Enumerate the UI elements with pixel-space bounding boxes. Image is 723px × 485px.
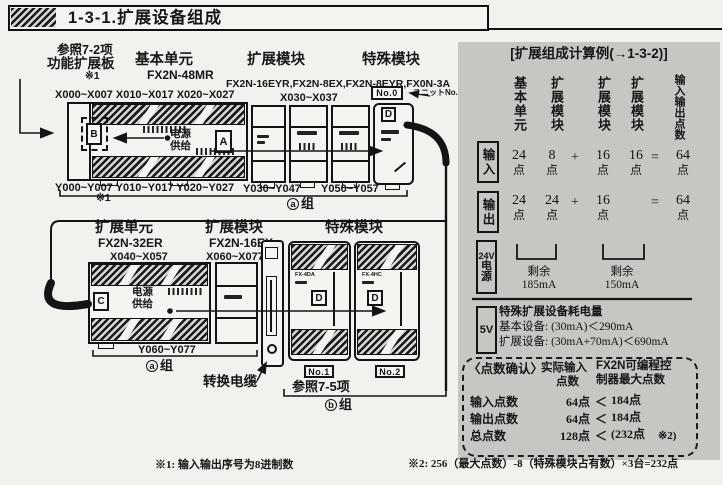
calc-cell: 24点	[503, 193, 535, 222]
calc-cell: 24点	[536, 193, 568, 222]
converter-screw	[267, 344, 277, 354]
board-c-tag: C	[93, 292, 109, 311]
terminal-gap	[130, 156, 160, 178]
converter-top-connector	[265, 247, 278, 259]
circled-a-icon: a	[146, 360, 158, 372]
check-row-max: 184点	[611, 411, 641, 424]
special-module-heading-r1: 特殊模块	[362, 53, 420, 69]
terminal-gap	[153, 264, 183, 286]
y-labels-r1: Y000~Y007 Y010~Y017 Y020~Y027	[55, 182, 234, 194]
terminal-gap	[375, 244, 405, 270]
title-hatch-icon	[11, 8, 56, 27]
input-row-label-box: 输入	[477, 141, 499, 183]
terminal-gap	[307, 329, 337, 355]
power-supply-l2-r2: 供给	[132, 299, 153, 311]
group-a-label-r1: a组	[287, 197, 314, 211]
group-a-label-r2: a组	[146, 359, 173, 373]
module-divider	[290, 160, 326, 162]
check-title: 〈点数确认〉	[468, 363, 543, 377]
check-col-actual-2: 点数	[556, 376, 579, 389]
check-row-name: 输出点数	[470, 413, 518, 426]
equals-sign: =	[651, 195, 659, 211]
exp-module-box-r2	[215, 262, 258, 344]
unit-foot	[98, 344, 114, 349]
terminal-gap	[111, 318, 141, 341]
plus-sign: +	[571, 150, 579, 166]
5v-title: 特殊扩展设备耗电量	[499, 303, 603, 319]
exp-unit-bottom-terminal	[91, 318, 208, 341]
note1-mark-bottom: ※1	[96, 193, 111, 205]
basic-unit-model: FX2N-48MR	[147, 69, 214, 82]
module-nameplate	[297, 131, 317, 135]
less-than-sign: ＜	[595, 396, 607, 409]
terminal-gap	[375, 329, 405, 355]
special1-top-terminal	[291, 244, 348, 270]
calc-cell: 16点	[587, 193, 619, 222]
check-col-max-1: FX2N可编程控	[596, 360, 671, 373]
exp-module-heading-r1: 扩展模块	[247, 53, 305, 69]
ref-note-line2: 功能扩展板	[47, 57, 115, 72]
panel-header: [扩展组成计算例(→1-3-2)]	[458, 47, 720, 62]
module-mark	[257, 135, 269, 138]
module-divider	[290, 126, 326, 128]
col-header-io-total: 输入输出点数	[671, 74, 687, 140]
check-row-max: 184点	[611, 394, 641, 407]
unit-no-label: ユニットNo.	[413, 89, 458, 98]
footnote-2: ※2: 256（最大点数）-8（特殊模块占有数）×3台=232点	[408, 458, 678, 470]
unit-foot	[385, 185, 400, 190]
board-a-tag: A	[215, 130, 232, 153]
output-row-label-box: 输出	[477, 191, 499, 233]
remaining-left: 剩余185mA	[513, 263, 565, 291]
module-mark	[295, 281, 307, 284]
power-5v-label-box: 5V	[476, 306, 497, 354]
module-mark	[362, 281, 374, 284]
power-char1: 电	[481, 261, 492, 272]
terminal-gap	[186, 156, 216, 178]
converter-pin	[270, 280, 272, 332]
converter-connector	[266, 276, 277, 336]
unit-no1-box: No.1	[304, 365, 334, 378]
output-row-label: 输出	[479, 198, 498, 227]
module-divider	[332, 126, 368, 128]
ref-75-label: 参照7-5项	[290, 380, 352, 394]
col-header-basic: 基本单元	[510, 76, 529, 132]
module-divider	[252, 126, 285, 128]
check-row-actual: 128点	[535, 430, 590, 443]
converter-cable-label: 转换电缆	[203, 375, 257, 390]
unit-foot	[300, 183, 315, 188]
y-label3-r1: Y050~Y057	[321, 183, 379, 195]
less-than-sign: ＜	[595, 413, 607, 426]
module-divider	[217, 285, 256, 287]
check-col-max-2: 制器最大点数	[596, 374, 665, 387]
check-row-actual: 64点	[535, 413, 590, 426]
calc-total-cell: 64点	[667, 148, 699, 177]
power-supply-l2-r1: 供给	[170, 141, 191, 153]
check-row-name: 输入点数	[470, 396, 518, 409]
circled-b-icon: b	[325, 399, 337, 411]
exp-module-1	[251, 105, 286, 183]
col-header-exp2: 扩展模块	[594, 76, 613, 132]
x-labels-r1: X000~X007 X010~X017 X020~X027	[55, 89, 235, 101]
title-bar: 1-3-1.扩展设备组成	[8, 5, 489, 31]
calc-cell: 16点	[620, 148, 652, 177]
terminal-gap	[130, 104, 160, 125]
basic-unit-top-terminal	[92, 104, 245, 125]
special2-bottom-terminal	[357, 329, 417, 355]
calc-cell: 8点	[536, 148, 568, 177]
check-row-actual: 64点	[535, 396, 590, 409]
module-terminals	[299, 143, 317, 150]
special-module-heading-r2: 特殊模块	[325, 221, 383, 237]
module-mark	[381, 138, 391, 141]
exp-unit-top-terminal	[91, 264, 208, 286]
note1-mark-top: ※1	[85, 71, 100, 83]
power-char2: 源	[481, 272, 492, 283]
unit-no2-box: No.2	[375, 365, 405, 378]
check-row-note: ※2)	[658, 430, 676, 442]
power-supply-l1-r2: 电源	[132, 287, 153, 299]
terminal-screws	[168, 288, 202, 295]
check-col-actual-1: 实际输入	[541, 362, 587, 375]
special2-model: FX-4HC	[362, 272, 382, 278]
input-row-label: 输入	[479, 148, 498, 177]
manual-page: 1-3-1.扩展设备组成 参照7-2项 功能扩展板 ※1 基本单元 FX2N-4…	[0, 0, 723, 485]
calc-cell: 16点	[587, 148, 619, 177]
terminal-gap	[111, 264, 141, 286]
special1-model: FX-4DA	[295, 272, 315, 278]
plus-sign: +	[571, 195, 579, 211]
check-row-max: (232点	[611, 428, 645, 441]
special-d-tag-2: D	[367, 290, 383, 306]
power-24v-label-box: 24V 电 源	[476, 240, 497, 294]
y-label1-r2: Y060~Y077	[138, 344, 196, 356]
group-b-label: b组	[325, 398, 352, 412]
terminal-gap	[307, 244, 337, 270]
5v-exp-line: 扩展设备: (30mA+70mA)＜690mA	[499, 333, 669, 349]
board-b-tag: B	[86, 123, 102, 145]
power-5v-text: 5V	[480, 324, 493, 336]
special-d-tag-r1: D	[381, 107, 396, 122]
page-title: 1-3-1.扩展设备组成	[68, 9, 222, 27]
terminal-gap	[153, 318, 183, 341]
module-terminals	[341, 143, 359, 150]
col-header-exp1: 扩展模块	[547, 76, 566, 132]
special1-bottom-terminal	[291, 329, 348, 355]
footnote-1: ※1: 输入输出序号为8进制数	[155, 459, 293, 471]
module-mark	[257, 141, 265, 144]
y-label2-r1: Y030~Y047	[243, 183, 301, 195]
x-label2-r1: X030~X037	[280, 92, 338, 104]
special1-divider	[333, 272, 335, 326]
power-supply-l1-r1: 电源	[170, 129, 191, 141]
equals-sign: =	[651, 150, 659, 166]
exp-unit-model: FX2N-32ER	[98, 237, 163, 250]
module-divider	[252, 160, 285, 162]
check-row-name: 总点数	[470, 430, 506, 443]
module-divider	[332, 160, 368, 162]
calc-total-cell: 64点	[667, 193, 699, 222]
special-d-tag-1: D	[311, 290, 327, 306]
calc-cell: 24点	[503, 148, 535, 177]
module-divider	[217, 317, 256, 319]
less-than-sign: ＜	[595, 430, 607, 443]
unit-no0-box: No.0	[371, 86, 403, 100]
exp-unit-heading: 扩展单元	[95, 221, 153, 237]
exp-module-heading-r2: 扩展模块	[205, 221, 263, 237]
5v-basic-line: 基本设备: (30mA)＜290mA	[499, 318, 633, 334]
col-header-exp3: 扩展模块	[627, 76, 646, 132]
special2-divider	[400, 272, 402, 326]
basic-unit-bottom-terminal	[92, 156, 245, 178]
module-nameplate	[224, 295, 242, 299]
module-nameplate	[339, 131, 359, 135]
circled-a-icon: a	[287, 198, 299, 210]
module-nameplate	[381, 130, 399, 134]
basic-unit-heading: 基本单元	[135, 53, 193, 69]
special2-top-terminal	[357, 244, 417, 270]
terminal-gap	[186, 104, 216, 125]
remaining-right: 剩余150mA	[596, 263, 648, 291]
